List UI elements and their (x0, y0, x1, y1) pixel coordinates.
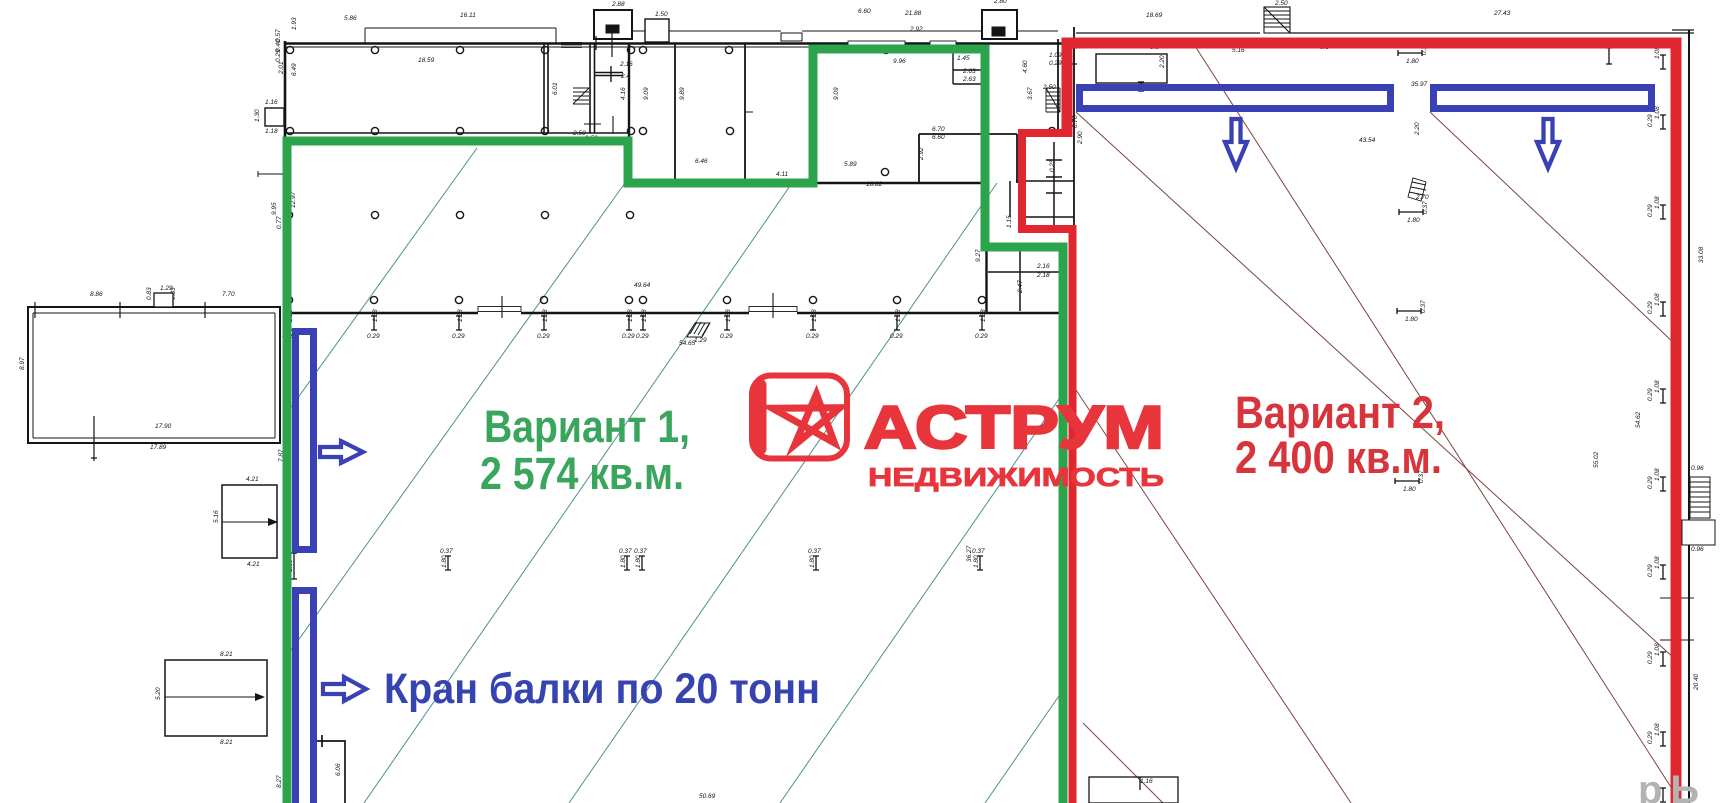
svg-text:1.18: 1.18 (265, 128, 278, 135)
svg-text:6.06: 6.06 (335, 763, 342, 776)
svg-text:5.89: 5.89 (844, 161, 857, 168)
svg-text:0.77: 0.77 (276, 216, 283, 229)
svg-text:9.09: 9.09 (643, 87, 650, 100)
svg-text:6.46: 6.46 (695, 158, 708, 165)
svg-text:6.60: 6.60 (932, 134, 945, 141)
svg-text:0.25: 0.25 (1049, 159, 1056, 172)
svg-text:6.01: 6.01 (552, 82, 559, 95)
svg-text:0.29: 0.29 (1049, 60, 1062, 67)
svg-text:0.29: 0.29 (975, 333, 988, 340)
svg-text:8.21: 8.21 (220, 739, 233, 746)
svg-text:2.88: 2.88 (611, 1, 625, 8)
svg-text:21.88: 21.88 (904, 10, 922, 17)
svg-text:27.43: 27.43 (1493, 10, 1511, 17)
svg-text:1.80: 1.80 (1405, 316, 1418, 323)
svg-text:1.50: 1.50 (655, 11, 668, 18)
svg-text:0.29: 0.29 (890, 333, 903, 340)
svg-text:2.50: 2.50 (1274, 0, 1288, 7)
svg-text:0.29: 0.29 (1647, 388, 1654, 401)
svg-text:54.62: 54.62 (1635, 411, 1642, 428)
svg-text:0.37: 0.37 (619, 548, 632, 555)
svg-text:1.80: 1.80 (973, 555, 980, 568)
svg-text:4.21: 4.21 (247, 561, 260, 568)
svg-text:2.63: 2.63 (962, 68, 976, 75)
svg-text:1.80: 1.80 (441, 555, 448, 568)
svg-text:1.08: 1.08 (1654, 380, 1661, 393)
svg-text:0.29: 0.29 (636, 333, 649, 340)
svg-text:9.96: 9.96 (893, 58, 906, 65)
svg-text:9.09: 9.09 (833, 87, 840, 100)
svg-text:0.29: 0.29 (622, 333, 635, 340)
svg-text:0.29: 0.29 (1647, 731, 1654, 744)
svg-text:0.29: 0.29 (367, 333, 380, 340)
svg-text:2.20: 2.20 (1159, 55, 1166, 69)
svg-text:1.80: 1.80 (1407, 217, 1420, 224)
svg-text:0.29: 0.29 (275, 49, 282, 62)
svg-text:2 574 кв.м.: 2 574 кв.м. (480, 448, 684, 499)
svg-text:0.70: 0.70 (1072, 115, 1079, 128)
svg-text:50.69: 50.69 (699, 793, 716, 800)
svg-text:0.37: 0.37 (440, 548, 453, 555)
svg-text:1.93: 1.93 (291, 17, 298, 30)
svg-text:1.80: 1.80 (1403, 486, 1416, 493)
svg-text:0.37: 0.37 (634, 548, 647, 555)
svg-text:1.29: 1.29 (694, 337, 707, 344)
svg-text:5.20: 5.20 (155, 687, 162, 700)
svg-text:2.18: 2.18 (1036, 272, 1050, 279)
svg-text:1.30: 1.30 (254, 109, 261, 122)
svg-text:Вариант 2,: Вариант 2, (1235, 387, 1445, 438)
svg-text:2.90: 2.90 (1077, 131, 1084, 145)
svg-text:49.64: 49.64 (634, 282, 651, 289)
svg-text:0.29: 0.29 (1647, 564, 1654, 577)
svg-text:8.21: 8.21 (220, 651, 233, 658)
svg-text:55.02: 55.02 (1593, 451, 1600, 468)
svg-text:1.08: 1.08 (1654, 293, 1661, 306)
svg-text:8.27: 8.27 (276, 775, 283, 788)
svg-text:9.95: 9.95 (271, 202, 278, 215)
svg-text:5.86: 5.86 (344, 15, 357, 22)
svg-text:1.68: 1.68 (895, 309, 902, 322)
svg-text:1.80: 1.80 (635, 555, 642, 568)
svg-text:6.49: 6.49 (291, 63, 298, 76)
svg-text:8.86: 8.86 (90, 291, 103, 298)
svg-text:2.50: 2.50 (1042, 84, 1056, 91)
svg-text:17.89: 17.89 (150, 444, 167, 451)
svg-text:6.70: 6.70 (932, 126, 945, 133)
svg-text:6.60: 6.60 (858, 8, 871, 15)
svg-text:43.54: 43.54 (1359, 137, 1376, 144)
svg-text:0.83: 0.83 (146, 287, 153, 300)
svg-text:33.08: 33.08 (1698, 246, 1705, 263)
svg-text:НЕДВИЖИМОСТЬ: НЕДВИЖИМОСТЬ (868, 462, 1164, 492)
svg-text:2.92: 2.92 (909, 26, 923, 33)
svg-text:0.37: 0.37 (972, 548, 985, 555)
svg-text:16.11: 16.11 (460, 12, 476, 19)
svg-text:1.08: 1.08 (1654, 723, 1661, 736)
svg-text:0.29: 0.29 (1647, 651, 1654, 664)
svg-text:рЬ: рЬ (1638, 768, 1707, 803)
svg-text:0.96: 0.96 (1691, 465, 1704, 472)
svg-text:4.11: 4.11 (776, 171, 789, 178)
svg-text:0.29: 0.29 (1647, 476, 1654, 489)
svg-text:18.59: 18.59 (418, 57, 435, 64)
svg-text:0.29: 0.29 (1647, 204, 1654, 217)
svg-text:35.97: 35.97 (1411, 81, 1428, 88)
svg-text:1.08: 1.08 (1654, 196, 1661, 209)
svg-text:0.96: 0.96 (1691, 546, 1704, 553)
svg-text:1.68: 1.68 (542, 309, 549, 322)
svg-text:1.08: 1.08 (1654, 468, 1661, 481)
svg-text:1.68: 1.68 (457, 309, 464, 322)
svg-text:2.80: 2.80 (993, 0, 1007, 5)
svg-text:9.89: 9.89 (679, 87, 686, 100)
svg-text:1.80: 1.80 (1406, 58, 1419, 65)
svg-text:0.37: 0.37 (1420, 300, 1427, 313)
svg-text:0.29: 0.29 (806, 333, 819, 340)
svg-text:0.29: 0.29 (452, 333, 465, 340)
svg-text:АСТРУМ: АСТРУМ (864, 394, 1164, 461)
svg-text:1.08: 1.08 (1654, 106, 1661, 119)
svg-text:1.68: 1.68 (372, 309, 379, 322)
svg-text:36.27: 36.27 (966, 545, 973, 562)
svg-text:1.68: 1.68 (811, 309, 818, 322)
svg-text:18.69: 18.69 (1146, 12, 1163, 19)
svg-text:1.68: 1.68 (725, 309, 732, 322)
svg-text:2.16: 2.16 (619, 61, 633, 68)
svg-text:1.08: 1.08 (1654, 556, 1661, 569)
svg-text:0.29: 0.29 (1647, 114, 1654, 127)
svg-text:1.80: 1.80 (809, 555, 816, 568)
svg-text:4.16: 4.16 (620, 87, 627, 100)
svg-text:7.70: 7.70 (222, 291, 235, 298)
svg-text:2 400 кв.м.: 2 400 кв.м. (1235, 432, 1442, 483)
svg-text:0.37: 0.37 (808, 548, 821, 555)
svg-text:1.45: 1.45 (957, 55, 970, 62)
svg-text:8.97: 8.97 (19, 357, 26, 370)
svg-text:1.80: 1.80 (620, 555, 627, 568)
svg-text:2.20: 2.20 (1414, 122, 1421, 136)
svg-text:0.29: 0.29 (1647, 301, 1654, 314)
svg-text:4.21: 4.21 (246, 476, 259, 483)
svg-text:0.29: 0.29 (537, 333, 550, 340)
svg-text:0.29: 0.29 (720, 333, 733, 340)
svg-text:Вариант 1,: Вариант 1, (484, 401, 690, 452)
svg-text:1.68: 1.68 (627, 309, 634, 322)
svg-text:4.60: 4.60 (1022, 60, 1029, 73)
svg-text:1.16: 1.16 (1140, 778, 1153, 785)
svg-text:1.16: 1.16 (265, 99, 278, 106)
svg-text:0.37: 0.37 (1422, 201, 1429, 214)
svg-text:2.63: 2.63 (962, 76, 976, 83)
svg-text:5.16: 5.16 (213, 510, 220, 523)
svg-text:Кран балки по 20 тонн: Кран балки по 20 тонн (384, 665, 820, 713)
svg-text:1.09: 1.09 (1049, 52, 1062, 59)
svg-text:2.16: 2.16 (1036, 263, 1050, 270)
svg-text:1.08: 1.08 (1654, 643, 1661, 656)
svg-text:3.67: 3.67 (1027, 87, 1034, 100)
svg-text:20.40: 20.40 (1693, 673, 1700, 691)
svg-text:17.90: 17.90 (155, 423, 172, 430)
svg-text:1.68: 1.68 (641, 309, 648, 322)
